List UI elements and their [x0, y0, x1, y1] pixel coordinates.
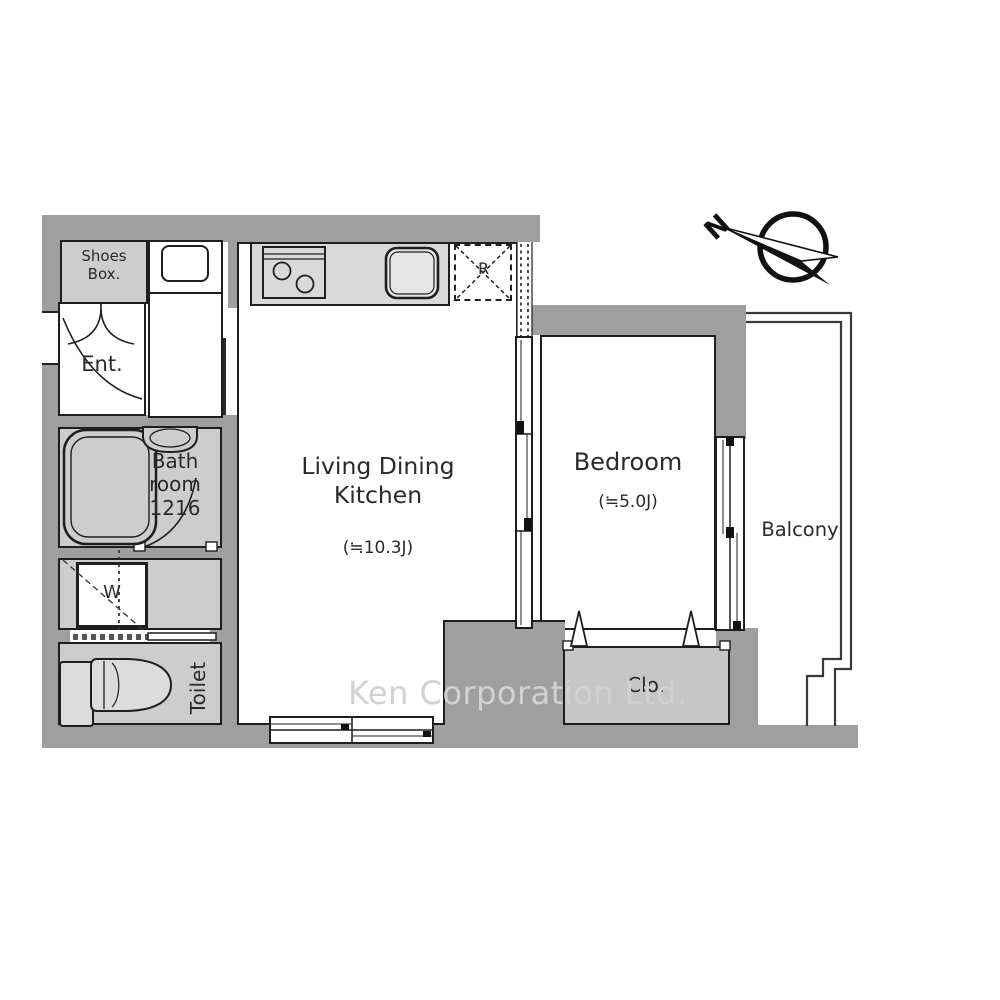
shoes-box-label: Shoes Box.: [74, 247, 134, 283]
washer-label: W: [76, 582, 148, 604]
wall-wet-core: [222, 415, 237, 725]
compass-icon: [722, 214, 838, 285]
entrance-label: Ent.: [58, 352, 146, 377]
bedroom-balcony-window: [716, 437, 744, 630]
wall-bedroom-top: [530, 305, 746, 335]
ldk-size-label: (≒10.3J): [292, 538, 464, 558]
ldk-bedroom-sliding-partition: [516, 337, 532, 628]
toilet-sliding-door: [70, 631, 216, 642]
ldk-label: Living Dining Kitchen: [292, 452, 464, 511]
balcony-label: Balcony: [748, 518, 852, 541]
wall-top: [42, 215, 540, 242]
kitchen-counter: [250, 242, 450, 306]
wall-closet-right: [728, 628, 758, 727]
wall-bottom: [42, 725, 858, 748]
bathroom-label: Bath room 1216: [131, 450, 219, 520]
hall-cabinet-icon: [161, 245, 209, 282]
refrigerator-label: R: [455, 259, 512, 278]
wall-bath-wash: [42, 548, 222, 558]
wall-wash-toilet-left: [42, 630, 70, 642]
watermark: Ken Corporation Ltd.: [348, 674, 652, 712]
glass-strip: [517, 242, 532, 338]
bedroom-size-label: (≒5.0J): [540, 492, 716, 512]
room-hall: [148, 240, 223, 418]
bedroom-label: Bedroom: [540, 448, 716, 477]
toilet-label: Toilet: [186, 642, 210, 734]
wall-wash-toilet-right: [210, 630, 222, 642]
room-bedroom: [540, 335, 716, 630]
wall-bedroom-right-upper: [716, 335, 746, 439]
floor-plan: Shoes Box. Ent. Bath room 1216 W Toilet …: [0, 0, 1000, 1000]
compass-north-label: N: [699, 208, 737, 246]
